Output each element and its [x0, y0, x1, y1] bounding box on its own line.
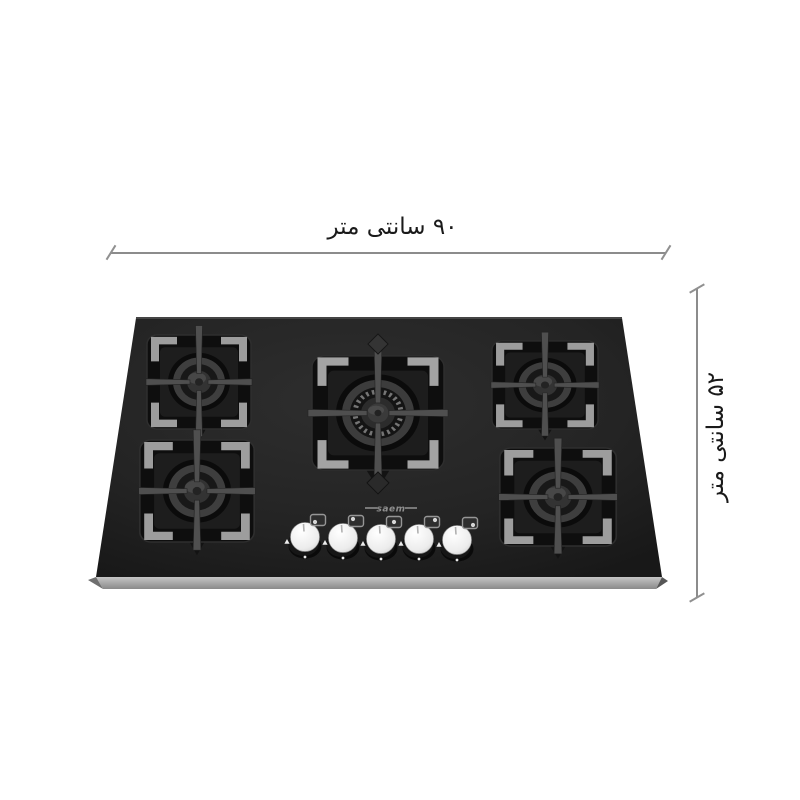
burner-top-right — [491, 332, 599, 440]
bottom-bevel-edge — [96, 577, 662, 589]
burner-bottom-right — [499, 438, 618, 559]
burner-position-indicator-icon — [311, 515, 326, 526]
brand-logo-text: saem — [377, 505, 406, 515]
cooktop-image: saem — [0, 0, 800, 800]
burner-position-indicator-icon — [425, 517, 440, 528]
burner-bottom-left — [139, 430, 256, 555]
product-image-canvas: ۹۰ سانتی متر ۵۲ سانتی متر — [0, 0, 800, 800]
burner-position-indicator-icon — [463, 518, 478, 529]
burner-position-indicator-icon — [349, 516, 364, 527]
burner-top-left — [146, 326, 252, 442]
burner-top-center — [308, 334, 448, 494]
burner-position-indicator-icon — [387, 517, 402, 528]
